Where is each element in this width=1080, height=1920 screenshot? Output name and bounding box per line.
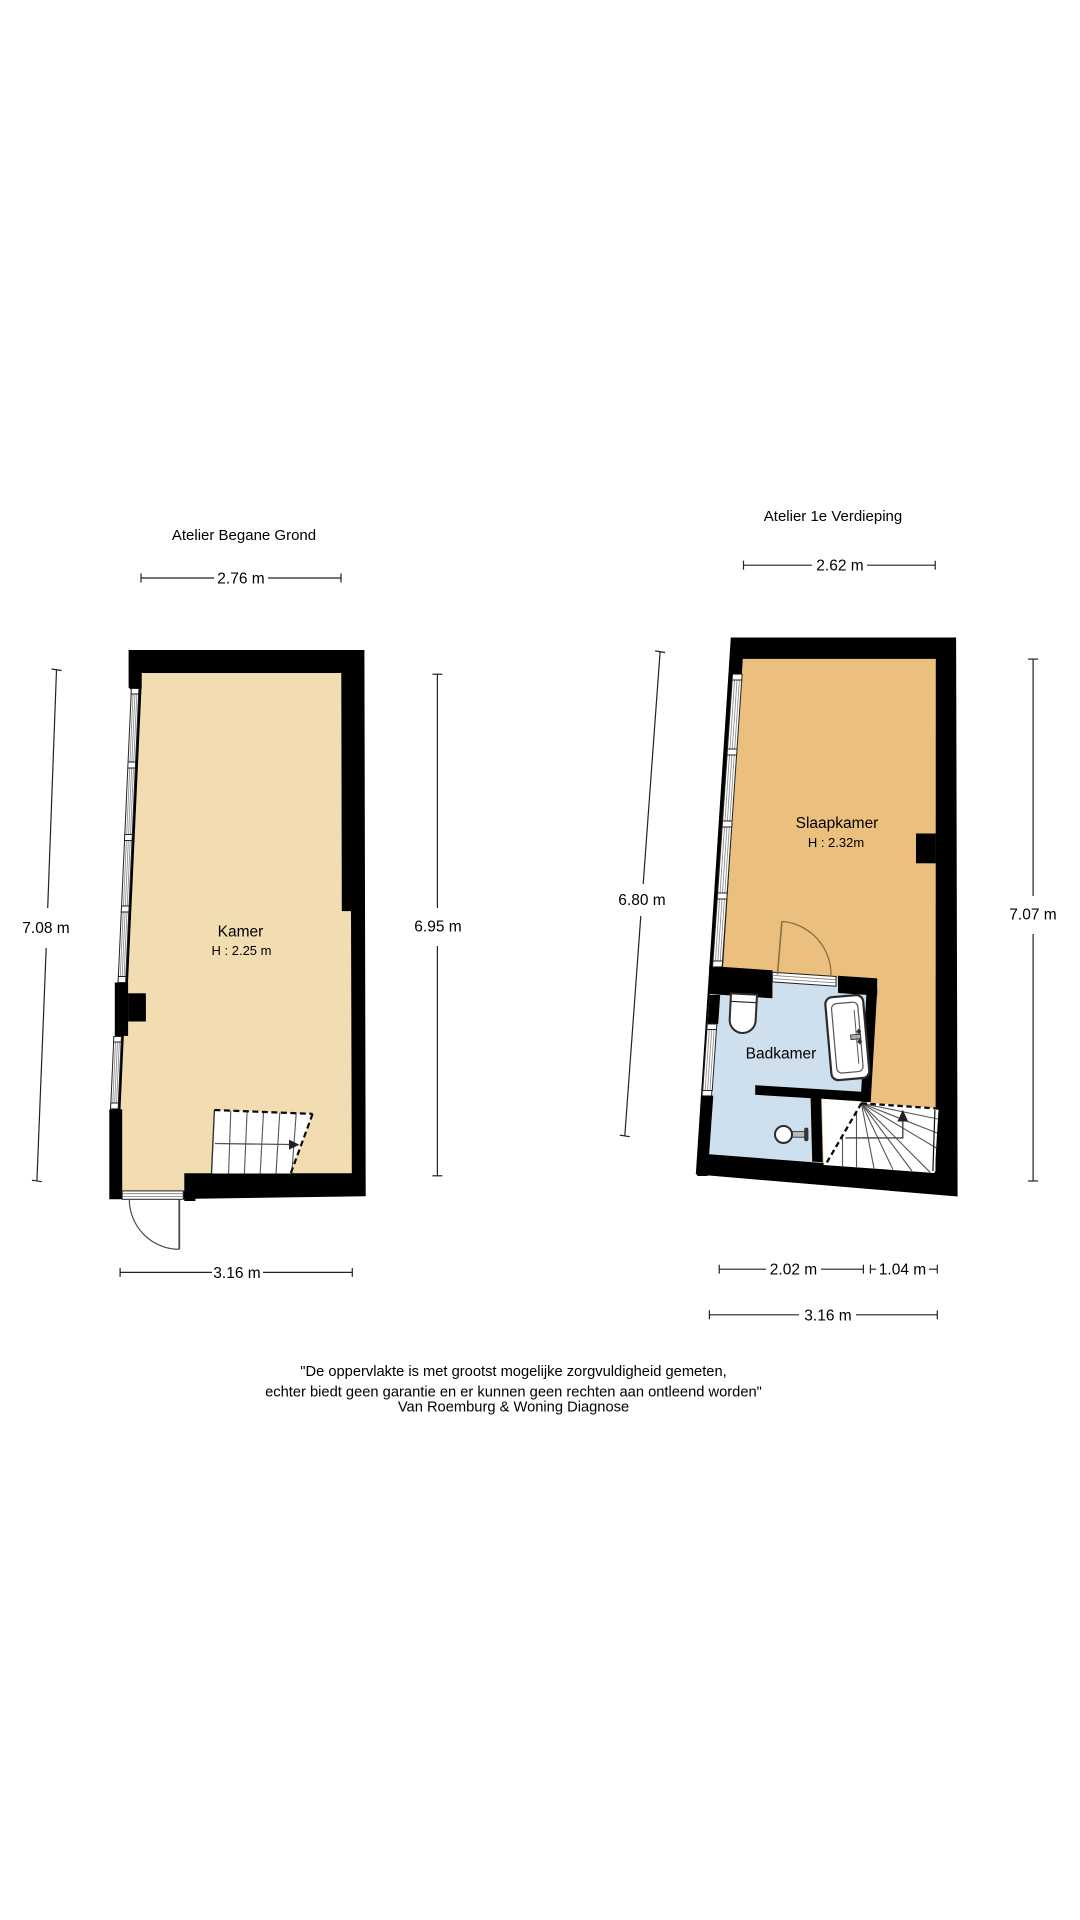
svg-text:Atelier 1e Verdieping: Atelier 1e Verdieping <box>764 508 902 525</box>
svg-text:7.07 m: 7.07 m <box>1009 907 1056 924</box>
svg-text:Badkamer: Badkamer <box>746 1046 817 1063</box>
svg-text:echter biedt geen garantie en: echter biedt geen garantie en er kunnen … <box>265 1385 762 1401</box>
svg-text:H : 2.32m: H : 2.32m <box>808 835 864 850</box>
svg-text:3.16 m: 3.16 m <box>804 1307 851 1324</box>
svg-text:2.76 m: 2.76 m <box>217 571 264 588</box>
svg-text:6.80 m: 6.80 m <box>618 892 665 909</box>
svg-text:"De oppervlakte is met grootst: "De oppervlakte is met grootst mogelijke… <box>300 1364 726 1380</box>
svg-text:3.16 m: 3.16 m <box>213 1265 260 1282</box>
svg-text:Atelier Begane Grond: Atelier Begane Grond <box>172 527 316 544</box>
svg-text:2.02 m: 2.02 m <box>770 1262 817 1279</box>
svg-text:1.04 m: 1.04 m <box>879 1262 926 1279</box>
svg-text:H : 2.25 m: H : 2.25 m <box>212 943 272 958</box>
svg-text:7.08 m: 7.08 m <box>22 920 69 937</box>
svg-text:Van Roemburg & Woning Diagnose: Van Roemburg & Woning Diagnose <box>398 1400 629 1416</box>
svg-text:Slaapkamer: Slaapkamer <box>796 815 879 832</box>
svg-text:6.95 m: 6.95 m <box>414 919 461 936</box>
svg-text:Kamer: Kamer <box>218 924 264 941</box>
svg-text:2.62 m: 2.62 m <box>816 558 863 575</box>
